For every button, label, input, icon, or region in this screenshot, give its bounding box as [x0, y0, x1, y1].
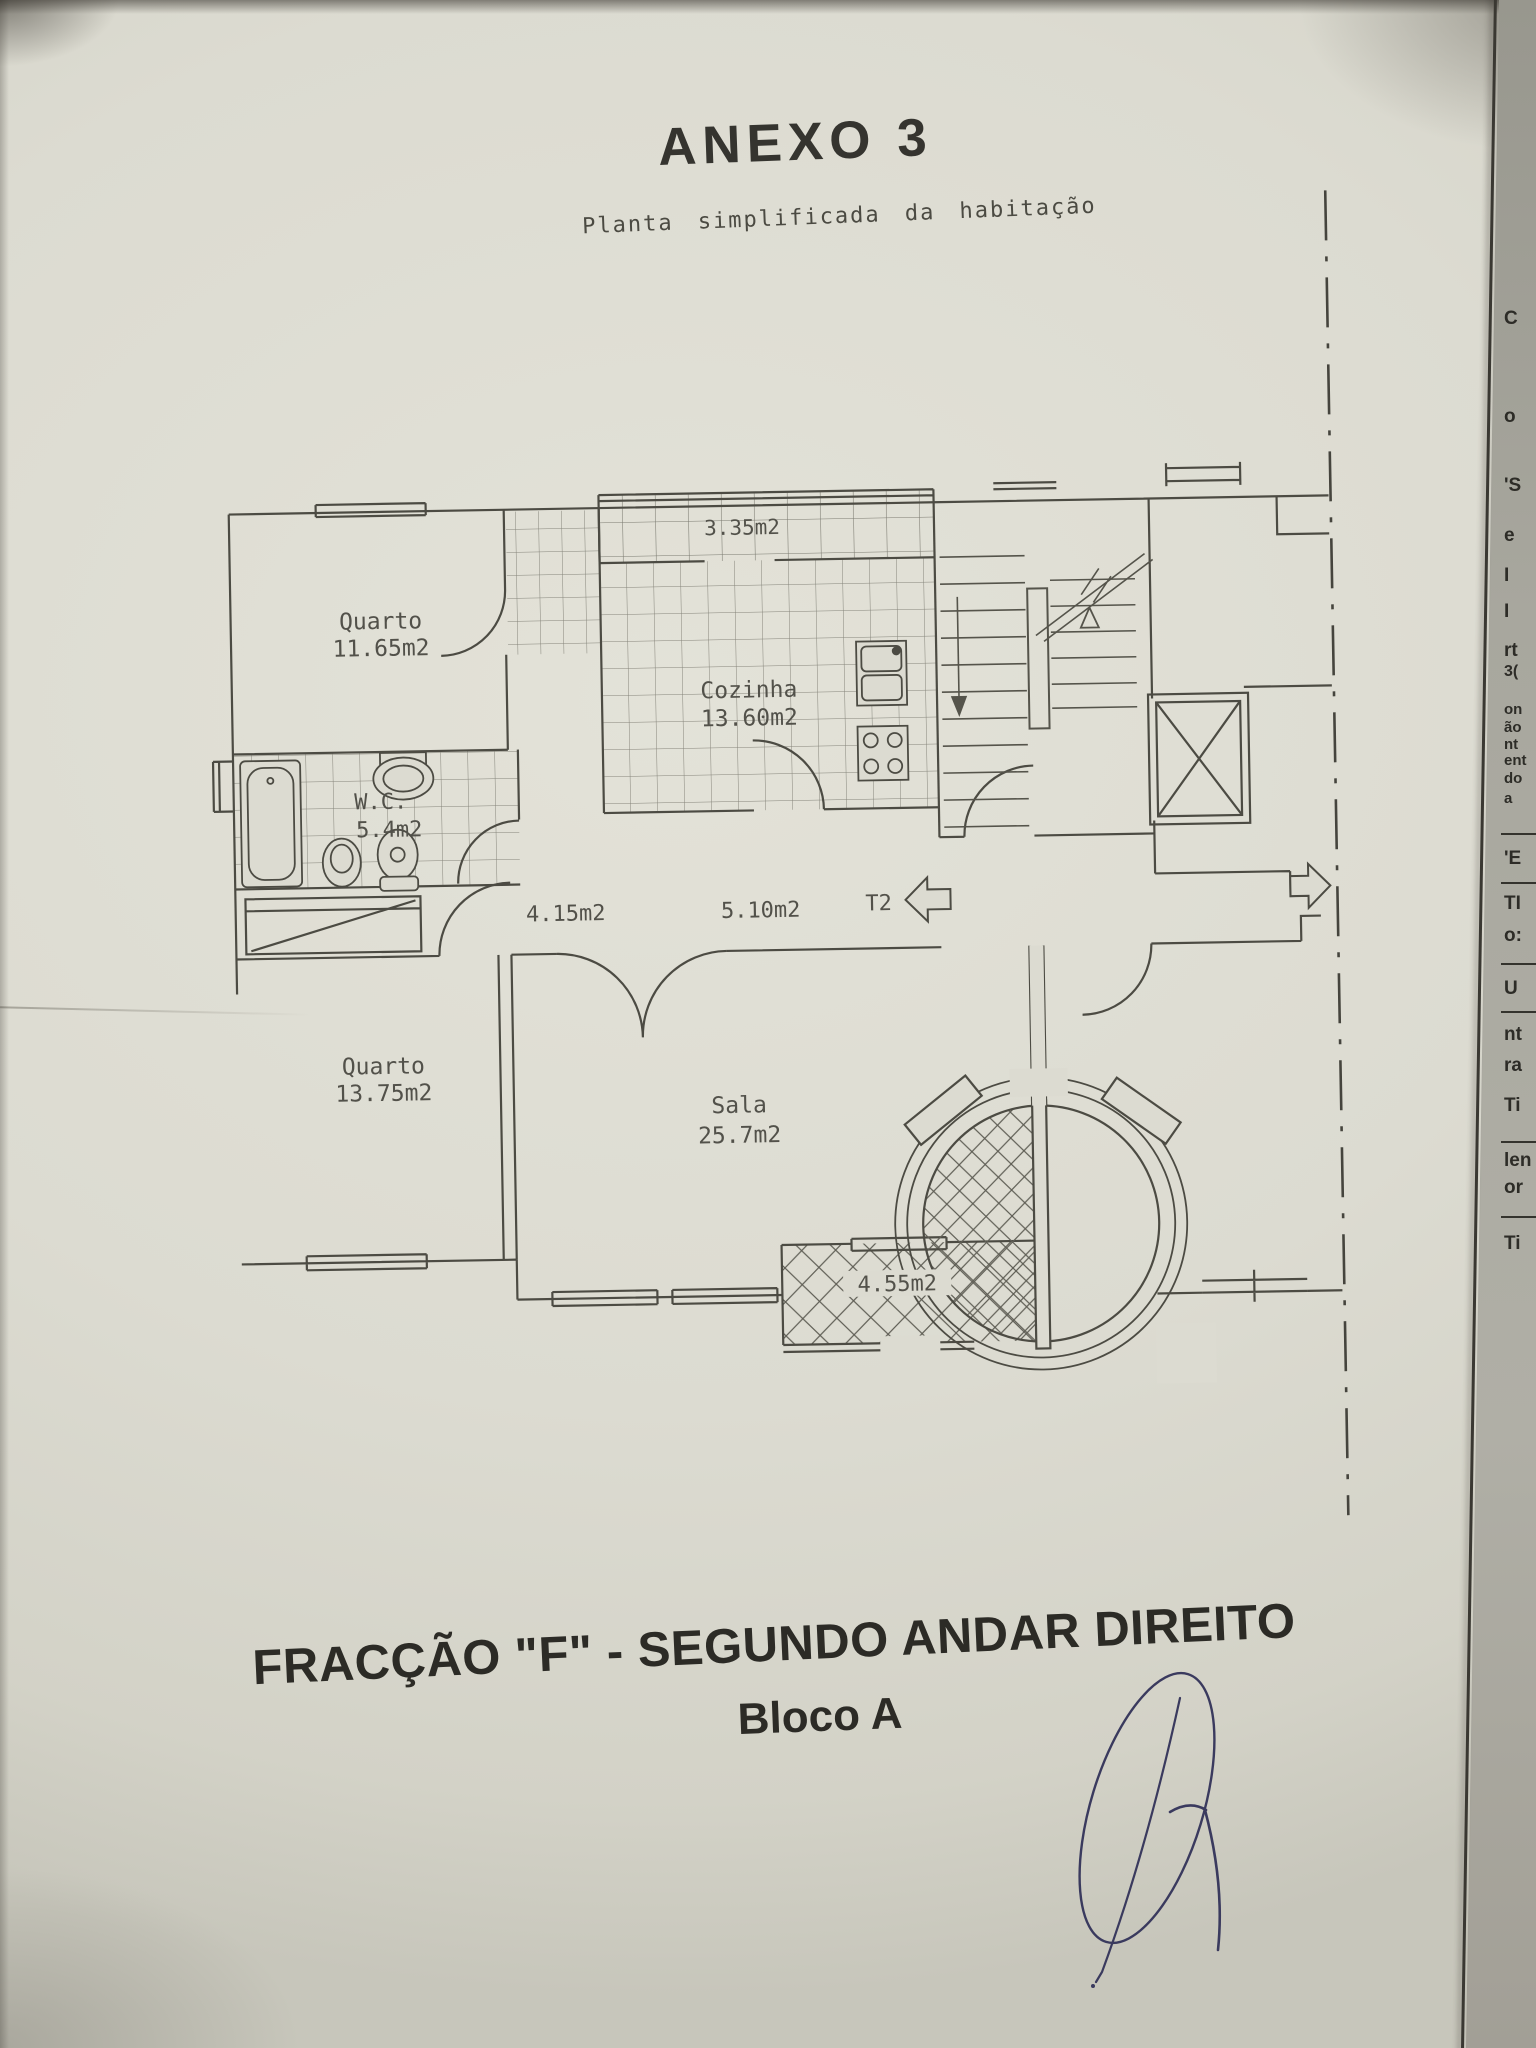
sheet2-fragment: ão	[1504, 719, 1522, 736]
sheet2-fragment: ent	[1504, 752, 1527, 769]
sheet2-divider	[1501, 833, 1536, 835]
signature	[1040, 1650, 1300, 2030]
type-label: T2	[865, 891, 892, 916]
sheet2-fragment: 'S	[1504, 475, 1521, 497]
sheet2-fragment: C	[1504, 308, 1518, 330]
room-label: Sala	[711, 1092, 767, 1119]
room-label: Quarto	[339, 608, 423, 635]
balcony-top-area: 3.35m2	[704, 515, 780, 540]
division-dashdot-line	[1325, 190, 1348, 1515]
sheet2-fragment: do	[1504, 770, 1522, 787]
sheet2-fragment: len	[1504, 1150, 1531, 1172]
sheet2-fragment: TI	[1504, 893, 1521, 915]
sheet2-fragment: nt	[1504, 736, 1518, 753]
hall-tiles	[506, 510, 601, 655]
toilet-tank	[380, 876, 418, 891]
elevator-x-icon	[1156, 701, 1242, 816]
stair-down-arrow-icon	[952, 697, 966, 715]
stairs	[940, 553, 1158, 827]
stair-direction-line	[957, 597, 959, 697]
page-title: ANEXO 3	[657, 107, 934, 178]
stove-icon	[858, 726, 909, 781]
bidet-icon	[322, 838, 361, 887]
room-area: 11.65m2	[332, 635, 429, 663]
sheet2-fragment: I	[1504, 565, 1509, 587]
sheet2-divider	[1501, 1141, 1536, 1143]
room-area: 25.7m2	[698, 1122, 782, 1149]
sheet2-fragment: Ti	[1504, 1233, 1521, 1255]
room-area: 13.60m2	[701, 705, 798, 733]
room-label: Cozinha	[700, 677, 797, 705]
sheet2-fragment: ra	[1504, 1055, 1522, 1077]
sheet2-fragment: Ti	[1504, 1095, 1521, 1117]
room-area: 5.4m2	[356, 817, 423, 843]
sheet2-divider	[1501, 1011, 1536, 1013]
sheet2-fragment: e	[1504, 525, 1515, 547]
sheet2-divider	[1501, 963, 1536, 965]
room-area: 13.75m2	[335, 1080, 432, 1108]
room-label: W.C.	[354, 789, 407, 815]
sheet2-fragment: o:	[1504, 925, 1522, 947]
sheet2-fragment: o	[1504, 406, 1516, 428]
sheet2-fragment: nt	[1504, 1024, 1522, 1046]
sheet2-fragment: U	[1504, 978, 1518, 1000]
elevator-shaft	[1148, 693, 1250, 825]
entrance-arrow-left-icon	[905, 877, 951, 922]
room-label: Quarto	[342, 1053, 426, 1080]
sheet2-fragment: or	[1504, 1177, 1523, 1199]
sheet2-divider	[1501, 1216, 1536, 1218]
sheet2-fragment: 3(	[1504, 663, 1518, 681]
sheet2-fragment: I	[1504, 601, 1509, 623]
pen-signature-icon	[1053, 1658, 1242, 1988]
hall-area: 4.15m2	[526, 901, 606, 927]
balcony-bottom-area: 4.55m2	[857, 1271, 937, 1297]
block-subtitle: Bloco A	[559, 1682, 1081, 1752]
sheet2-fragment: rt	[1504, 640, 1518, 662]
sheet2-divider	[1501, 882, 1536, 884]
sheet2-fragment: a	[1504, 790, 1512, 807]
floor-plan-drawing: Quarto 11.65m2 3.35m2 Cozinha 13.60m2 W.…	[188, 170, 1372, 1570]
sheet2-fragment: on	[1504, 701, 1522, 718]
entrance-arrow-right-icon	[1290, 863, 1331, 908]
stair-triangle-mark	[1080, 607, 1098, 627]
document-sheet: ANEXO 3 Planta simplificada da habitação	[0, 0, 1536, 2048]
bay-dividing-wall	[1032, 1100, 1050, 1348]
corridor-area: 5.10m2	[721, 898, 801, 924]
sheet2-fragment: 'E	[1504, 848, 1521, 870]
scanned-document-photo: C o 'S e I I rt 3( on ão nt ent do a 'E …	[0, 0, 1536, 2048]
